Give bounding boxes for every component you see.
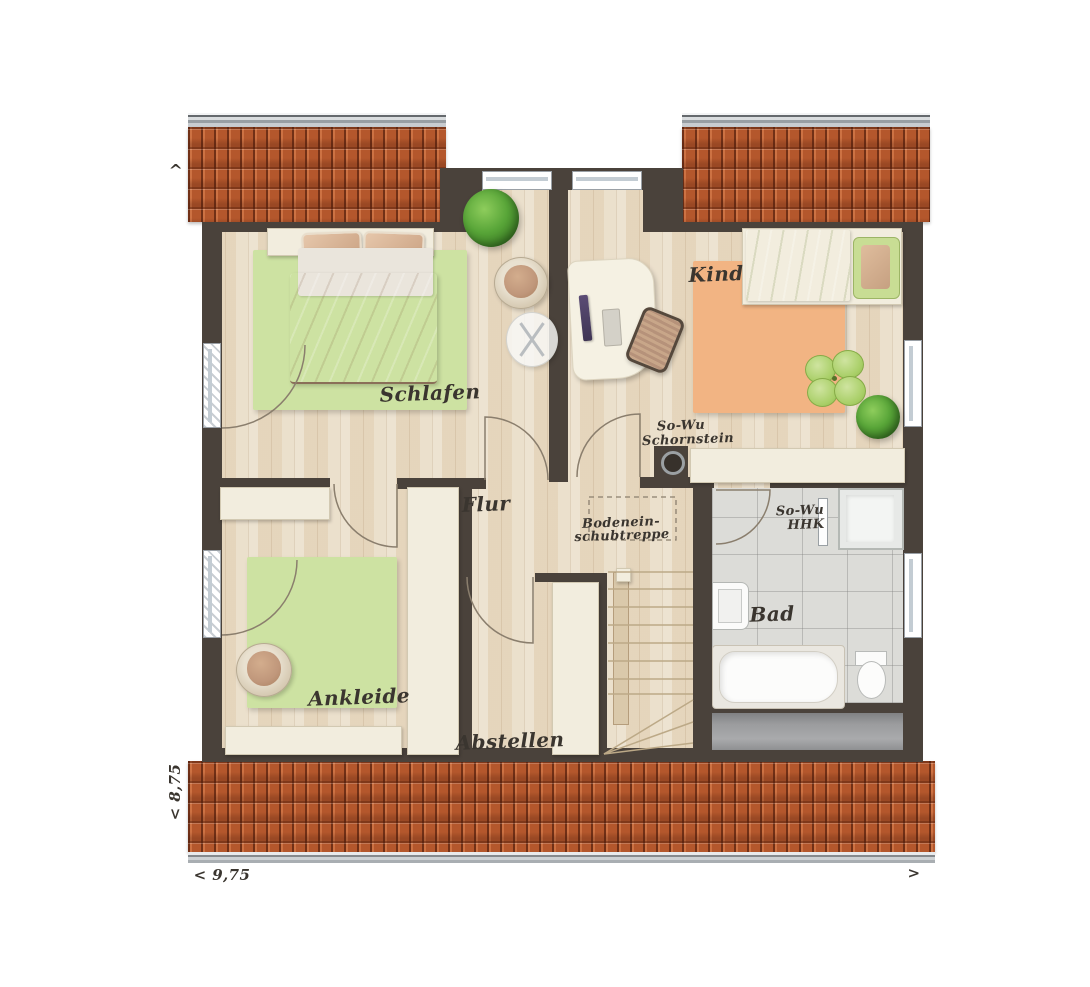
cushion-petal (832, 350, 864, 379)
roof-tiles (188, 761, 935, 852)
dressing-room-pouf (236, 643, 292, 697)
bathtub-basin (719, 651, 838, 703)
bedroom-window (203, 343, 221, 428)
dimension-arrow-up: ^ (169, 161, 184, 181)
wardrobe-top (220, 487, 330, 520)
top-window-left (482, 171, 552, 190)
roof-ridge (188, 113, 446, 127)
window-glass (208, 349, 212, 422)
potted-plant (463, 189, 519, 247)
wall-dressing-right (457, 478, 472, 761)
wall-outer-right (903, 222, 923, 761)
blanket (290, 273, 437, 384)
shower (838, 488, 904, 550)
green-blanket (746, 230, 850, 301)
stair-handrail (613, 572, 629, 725)
wardrobe-bottom (225, 726, 402, 755)
room-label-schlafen: Schlafen (379, 379, 481, 407)
dimension-bottom: < 9,75 (194, 866, 251, 884)
window-glass (576, 177, 639, 181)
toilet-bowl (857, 661, 886, 699)
dimension-arrow-right: > (908, 864, 921, 882)
roof-top-left (188, 113, 446, 222)
dressing-room-window (203, 550, 221, 638)
potted-plant (856, 395, 900, 439)
bathtub (712, 645, 845, 709)
roof-tiles (682, 127, 930, 222)
roof-gutter (188, 852, 935, 863)
wardrobe-right (407, 487, 459, 755)
sink (712, 582, 749, 630)
roof-top-right (682, 113, 930, 222)
flower-cushion (804, 350, 864, 406)
room-label-flur: Flur (461, 491, 510, 517)
room-label-ankleide: Ankleide (308, 683, 411, 711)
single-bed (742, 228, 902, 305)
pouf-cushion (247, 651, 282, 685)
floor-plan: Schlafen Kind Flur Bad Ankleide Abstelle… (0, 0, 1090, 987)
bedroom-pouf-chair (494, 257, 548, 309)
stair-newel (616, 568, 631, 582)
wall-outer-left (202, 222, 222, 761)
pillow-center (861, 245, 890, 289)
sink-basin (718, 589, 742, 623)
window-glass (909, 559, 913, 632)
double-bed (267, 228, 439, 384)
roof-tiles (188, 127, 446, 222)
keyboard (602, 308, 623, 346)
bathroom-window (904, 553, 922, 638)
kids-room-window (904, 340, 922, 427)
roof-ridge (682, 113, 930, 127)
bath-dormer-roof (712, 713, 903, 750)
roof-bottom (188, 761, 935, 863)
room-label-bad: Bad (749, 601, 795, 627)
wall-dormer-bottom (698, 750, 923, 762)
shower-tray (846, 495, 894, 542)
room-label-abstellen: Abstellen (455, 727, 565, 755)
chimney-label-line2: Schornstein (642, 431, 735, 449)
window-glass (486, 177, 549, 181)
pillow (853, 237, 900, 299)
dimension-left: < 8,75 (166, 764, 184, 821)
chimney-flue (661, 451, 685, 475)
pouf-cushion (504, 265, 537, 298)
round-side-table (506, 312, 558, 367)
room-label-kind: Kind (688, 261, 744, 287)
window-glass (909, 346, 913, 421)
chimney (654, 446, 688, 477)
top-window-right (572, 171, 642, 190)
window-glass (208, 556, 212, 632)
cushion-button (832, 376, 837, 381)
sideboard (690, 448, 905, 483)
hhk-label-line2: HHK (787, 517, 825, 533)
